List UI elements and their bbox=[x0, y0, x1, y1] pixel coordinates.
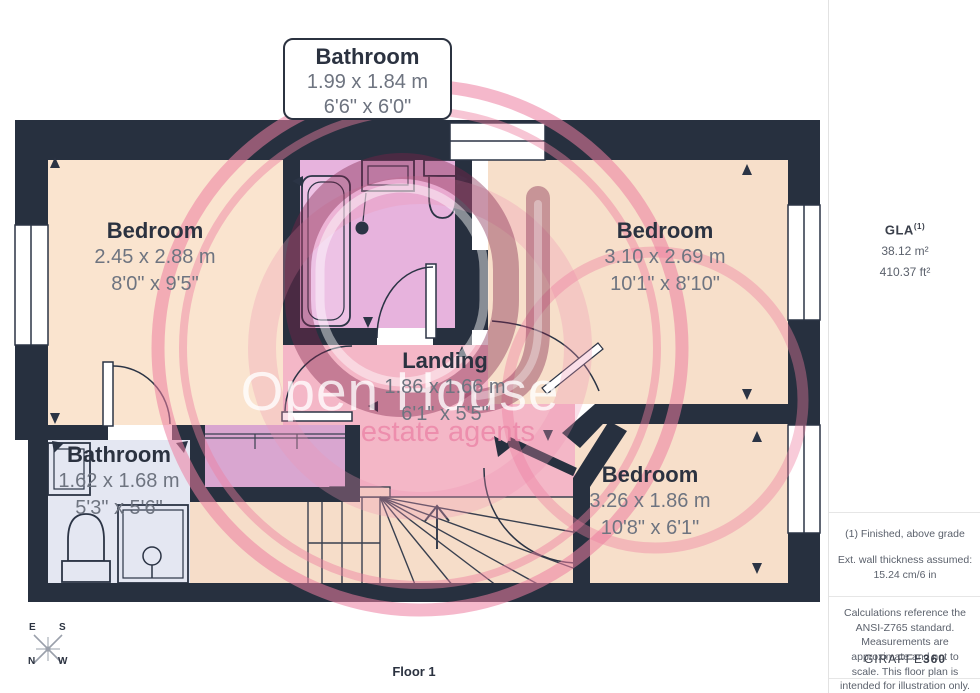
room-label-bedroom-bottom: Bedroom 3.26 x 1.86 m 10'8" x 6'1" bbox=[530, 462, 770, 542]
gla-area-imperial: 410.37 ft² bbox=[829, 265, 980, 279]
floor-plan-page: Open House estate agents Bathroom 1.99 x… bbox=[0, 0, 980, 693]
gla-note-ref: (1) bbox=[914, 222, 925, 231]
gla-block: GLA(1) 38.12 m² 410.37 ft² bbox=[829, 222, 980, 279]
room-dim-imperial: 6'1" x 5'5" bbox=[325, 401, 565, 428]
room-label-landing: Landing 1.86 x 1.66 m 6'1" x 5'5" bbox=[325, 348, 565, 428]
room-label-bedroom-right: Bedroom 3.10 x 2.69 m 10'1" x 8'10" bbox=[545, 218, 785, 298]
room-name: Bedroom bbox=[35, 218, 275, 244]
room-label-bedroom-left: Bedroom 2.45 x 2.88 m 8'0" x 9'5" bbox=[35, 218, 275, 298]
compass-east: E bbox=[29, 622, 36, 633]
room-name: Landing bbox=[325, 348, 565, 374]
bathroom-callout: Bathroom 1.99 x 1.84 m 6'6" x 6'0" bbox=[283, 38, 452, 120]
sidebar-divider bbox=[829, 678, 980, 679]
exterior-wall-top bbox=[15, 120, 820, 160]
room-name: Bedroom bbox=[530, 462, 770, 488]
brand-suffix: 360 bbox=[923, 652, 946, 666]
window-right-upper bbox=[788, 205, 820, 320]
sidebar-divider bbox=[829, 596, 980, 597]
room-name: Bedroom bbox=[545, 218, 785, 244]
brand-logo: GIRAFFE360 bbox=[829, 652, 980, 666]
room-name: Bathroom bbox=[285, 44, 450, 70]
note-finished-grade: (1) Finished, above grade bbox=[837, 527, 973, 542]
room-dim-imperial: 10'8" x 6'1" bbox=[530, 515, 770, 542]
floor-label: Floor 1 bbox=[0, 664, 828, 679]
room-dim-metric: 3.10 x 2.69 m bbox=[545, 244, 785, 271]
room-dim-metric: 1.62 x 1.68 m bbox=[19, 468, 219, 495]
brand-name: GIRAFFE bbox=[864, 652, 923, 666]
gla-area-metric: 38.12 m² bbox=[829, 244, 980, 258]
sidebar-divider bbox=[829, 512, 980, 513]
gla-label: GLA bbox=[885, 222, 914, 237]
room-dim-metric: 2.45 x 2.88 m bbox=[35, 244, 275, 271]
note-wall-thickness: Ext. wall thickness assumed: 15.24 cm/6 … bbox=[837, 553, 973, 582]
room-dim-metric: 1.99 x 1.84 m bbox=[285, 70, 450, 95]
compass-south: S bbox=[59, 622, 66, 633]
room-dim-imperial: 6'6" x 6'0" bbox=[285, 95, 450, 120]
gla-title: GLA(1) bbox=[829, 222, 980, 237]
wall-bedroom-left-bottom-a bbox=[15, 425, 108, 440]
room-dim-imperial: 10'1" x 8'10" bbox=[545, 271, 785, 298]
room-dim-metric: 3.26 x 1.86 m bbox=[530, 488, 770, 515]
room-name: Bathroom bbox=[19, 442, 219, 468]
room-dim-metric: 1.86 x 1.66 m bbox=[325, 374, 565, 401]
room-dim-imperial: 5'3" x 5'6" bbox=[19, 495, 219, 522]
disclaimer-text: Calculations reference the ANSI-Z765 sta… bbox=[837, 606, 973, 693]
info-sidebar: GLA(1) 38.12 m² 410.37 ft² (1) Finished,… bbox=[828, 0, 980, 693]
room-label-bathroom-small: Bathroom 1.62 x 1.68 m 5'3" x 5'6" bbox=[19, 442, 219, 522]
wall-bedrooms-divider bbox=[595, 404, 788, 424]
room-dim-imperial: 8'0" x 9'5" bbox=[35, 271, 275, 298]
